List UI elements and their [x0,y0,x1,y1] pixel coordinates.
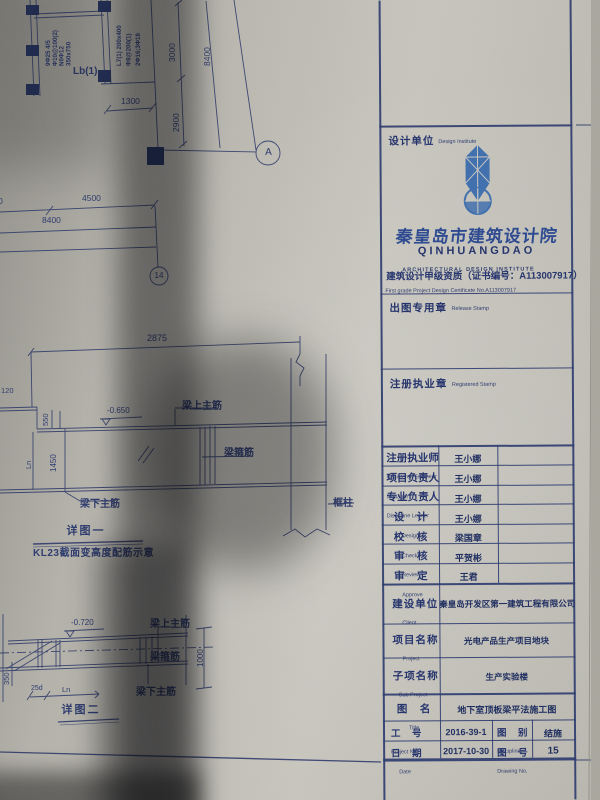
detail-2-title: 详图二 [55,705,107,716]
title-block: 设计单位 Design Institute 秦皇岛市建筑设计院 QINHUANG… [379,0,577,800]
date-cell: 日 期Date 2017-10-30 [379,0,572,1]
label-column: 框柱 [333,494,353,510]
label-top-rebar-1: 梁上主筋 [182,397,222,413]
beam-note-2: L7(1) 200x400 Φ8@200(1) 2Φ16;3Φ18 [115,20,160,66]
dimension-1450: 1450 [50,454,58,472]
label-bottom-rebar-1: 梁下主筋 [80,495,120,511]
personnel-row: 项目负责人Manager 王小娜 [379,0,572,1]
dimension-2875: 2875 [147,334,167,343]
beam-note-1: 9Φ25 4/5 Φ10@100(2) N6Φ12 350x750 [45,20,89,66]
detail-1-title: 详图一 [60,526,112,537]
personnel-row: 注册执业师Registered Engineer 王小娜 [379,0,572,1]
personnel-row: 专业负责人Discipline Leader 王小娜 [379,0,572,1]
discipline-cell: 图 别Discipline 结施 [379,0,572,1]
dimension-550: 550 [42,413,50,426]
label-stirrup-2: 梁箍筋 [150,648,180,664]
registered-stamp-label: 注册执业章 Registered Stamp [390,374,532,393]
client-row: 建设单位Client 秦皇岛开发区第一建筑工程有限公司 [379,0,572,1]
label-bottom-rebar-2: 梁下主筋 [136,683,176,699]
sub-project-row: 子项名称Sub Project 生产实验楼 [379,0,572,1]
dimension-350: 350 [3,672,11,685]
dimension-25d: 25d [31,685,43,692]
dimension-2900: 2900 [172,113,181,132]
project-row: 项目名称Project 光电产品生产项目地块 [379,0,572,1]
release-stamp-label: 出图专用章 Release Stamp [389,298,519,317]
dimension-1000: 1000 [197,649,205,667]
dimension-4500: 4500 [82,194,101,203]
level-mark-0650: -0.650 [107,407,130,415]
dimension-1300: 1300 [121,97,140,106]
dimension-120: 120 [1,387,14,395]
dimension-3000: 3000 [168,43,177,62]
institute-name-en: QINHUANGDAO [380,244,573,257]
axis-bubble-a: A [262,148,275,158]
drawing-no-cell: 图 号Drawing No. 15 [379,0,572,1]
dimension-3900: 3900 [0,197,3,206]
personnel-row: 校 核Check 梁国章 [379,0,572,1]
axis-bubble-14: 14 [151,272,167,280]
personnel-row: 设 计Design 王小娜 [379,0,572,1]
personnel-row: 审 定Approve 王君 [379,0,572,1]
blueprint-photo: A 14 1300 3000 2900 8400 3900 4500 8400 … [0,0,600,800]
label-stirrup-1: 梁箍筋 [224,444,254,460]
project-no-cell: 工 号Project No. 2016-39-1 [379,0,572,1]
paper-edge [591,0,600,800]
beam-note-lb: Lb(1) [73,62,97,78]
institute-logo [455,145,499,217]
personnel-row: 审 核Review 平贺彬 [379,0,572,1]
detail-1-caption: KL23截面变高度配筋示意 [33,549,154,559]
dimension-8400-mid: 8400 [42,216,61,225]
dimension-ln-2: Ln [62,686,70,694]
level-mark-0720: -0.720 [71,619,94,627]
drawing-title-row: 图 名Title 地下室顶板梁平法施工图 [379,0,572,1]
dimension-ln-1: Ln [25,461,33,469]
dimension-8400-top: 8400 [203,47,212,66]
qualification-en: First grade Project Design Certificate N… [385,279,600,298]
label-top-rebar-2: 梁上主筋 [150,615,190,631]
